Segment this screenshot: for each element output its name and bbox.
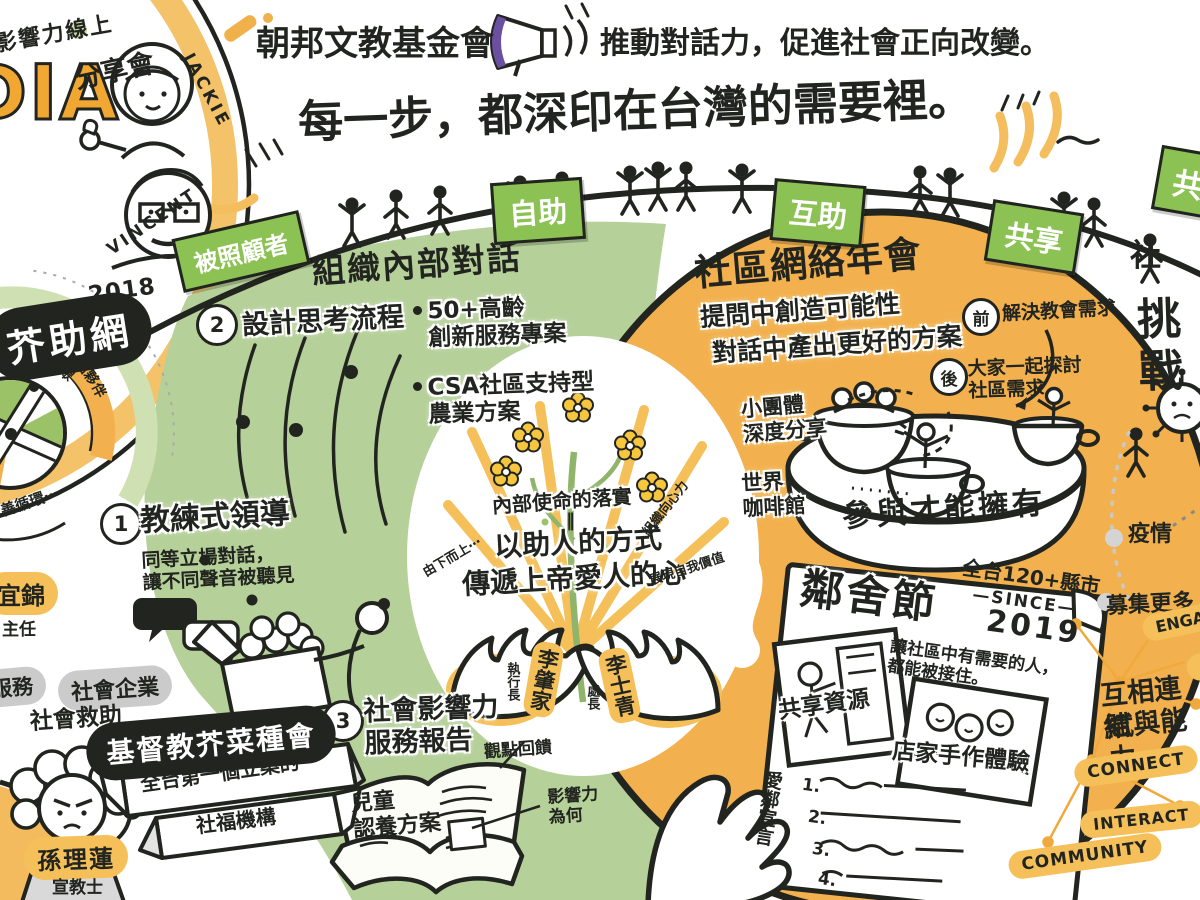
manifesto-item-1: 1. xyxy=(801,775,822,797)
banner-self-help: 自助 xyxy=(490,177,586,245)
person-title-director: 處長 xyxy=(584,684,599,710)
after-text: 大家一起探討 社區需求 xyxy=(967,354,1083,403)
step-1-desc: 同等立場對話， 讓不同聲音被聽見 xyxy=(141,542,295,595)
bullet-dot xyxy=(413,382,422,391)
after-badge: 後 xyxy=(930,358,968,396)
bullet-senior-program: 50+高齡 創新服務專案 xyxy=(427,294,567,353)
graphic-recording-poster: 者・一般大眾 共好點夥伴 xyxy=(0,0,1200,900)
mustard-person: 孫理蓮 xyxy=(23,834,128,881)
note-impact: 影響力 為何 xyxy=(547,784,601,828)
small-group-label: 小團體 深度分享 xyxy=(740,390,828,447)
step-3-label: 社會影響力 服務報告 xyxy=(363,692,500,760)
megaphone-icon xyxy=(492,16,586,76)
jia-person-title: 主任 xyxy=(2,620,36,640)
partial-right-label: 社 xyxy=(1130,238,1161,275)
pandemic-label: 疫情 xyxy=(1128,522,1172,548)
book-label: 兒童 認養方案 xyxy=(350,784,442,843)
bullet-csa-program: CSA社區支持型 農業方案 xyxy=(427,369,595,429)
org-name: 朝邦文教基金會 xyxy=(256,24,494,64)
step-2-number: 2 xyxy=(196,304,238,346)
org-tagline: 推動對話力，促進社會正向改變。 xyxy=(600,26,1050,61)
banner-mutual-help: 互助 xyxy=(769,178,866,248)
bullet-dot xyxy=(413,306,422,315)
jia-person: 宜錦 xyxy=(0,572,58,615)
before-badge: 前 xyxy=(962,298,1000,336)
manifesto-item-2: 2. xyxy=(807,807,828,829)
manifesto-item-3: 3. xyxy=(811,839,832,861)
mustard-person-title: 宣教士 xyxy=(52,878,103,898)
manifesto-item-4: 4. xyxy=(817,869,838,891)
person-title-ceo: 執行長 xyxy=(504,662,519,701)
challenge-label: 挑戰 xyxy=(1136,293,1200,399)
world-cafe-label: 世界 咖啡館 xyxy=(741,468,807,521)
step-1-number: 1 xyxy=(100,503,142,545)
